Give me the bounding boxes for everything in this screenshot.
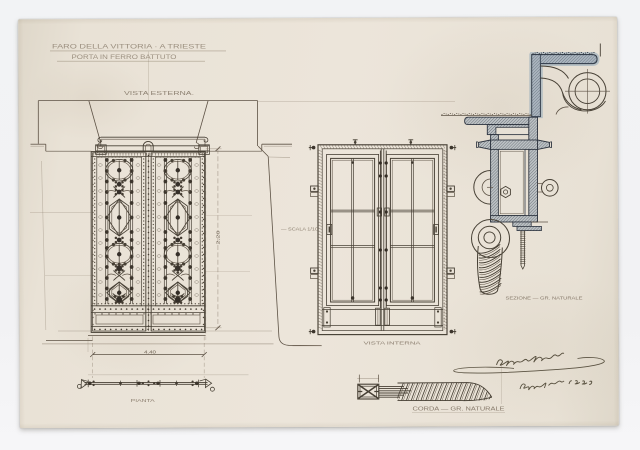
- svg-text:2.20: 2.20: [216, 230, 221, 245]
- svg-text:SEZIONE — GR. NATURALE: SEZIONE — GR. NATURALE: [506, 296, 583, 301]
- svg-text:VISTA ESTERNA.: VISTA ESTERNA.: [124, 91, 194, 97]
- svg-text:PIANTA: PIANTA: [131, 398, 155, 403]
- svg-text:— SCALA 1/10: — SCALA 1/10: [281, 226, 319, 231]
- svg-text:4.40: 4.40: [144, 349, 157, 354]
- svg-text:VISTA INTERNA: VISTA INTERNA: [364, 340, 423, 345]
- svg-text:FARO DELLA VITTORIA · A TRIEST: FARO DELLA VITTORIA · A TRIESTE: [52, 44, 207, 51]
- svg-text:PORTA IN FERRO BATTUTO: PORTA IN FERRO BATTUTO: [72, 55, 177, 61]
- svg-text:CORDA — GR. NATURALE: CORDA — GR. NATURALE: [413, 406, 506, 412]
